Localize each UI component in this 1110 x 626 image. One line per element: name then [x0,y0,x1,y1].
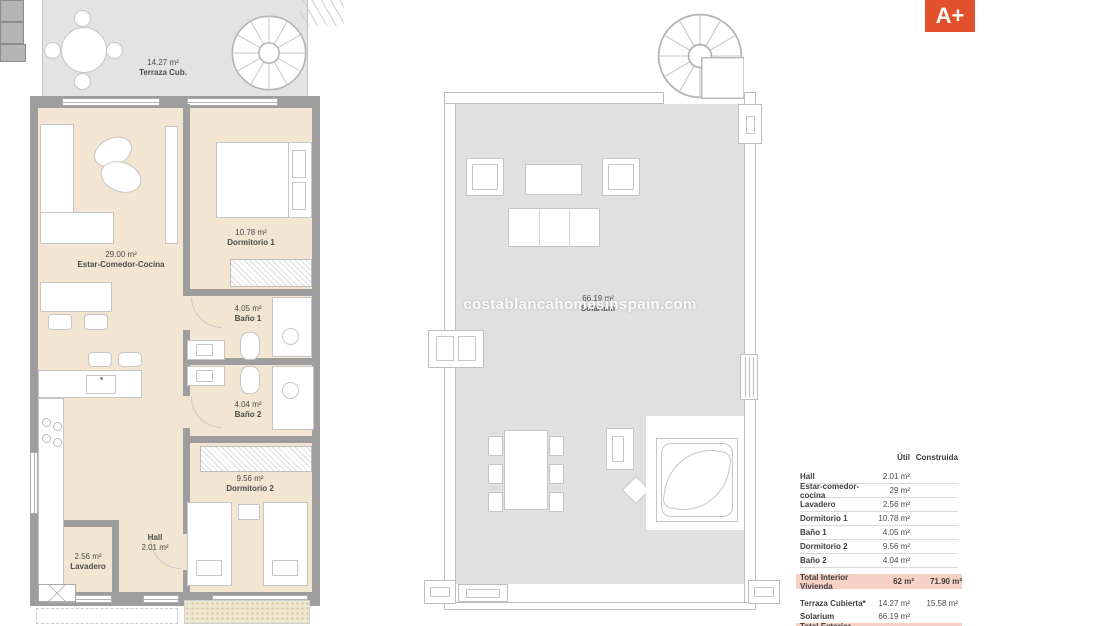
room-area: 4.04 m² [234,400,261,409]
chair [549,464,564,484]
spiral-staircase [230,12,308,94]
outdoor-sofa [508,208,600,247]
window [30,452,38,514]
area-table-header: Útil Construida [800,450,958,464]
row-label: Total Exterior Vivienda [800,622,874,626]
area-table-row: Estar-comedor-cocina 29 m² [800,484,958,498]
room-label-bano2: 4.04 m² Baño 2 [188,400,308,419]
row-label: Dormitorio 1 [800,514,870,523]
window [143,595,179,603]
dining-table [504,430,548,510]
room-label-bano1: 4.05 m² Baño 1 [188,304,308,323]
window [458,336,476,361]
window [187,98,278,106]
wall-segment [183,436,312,443]
garden-area [184,600,310,624]
room-label-estar: 29.00 m² Estar-Comedor-Cocina [56,250,186,269]
room-area: 2.01 m² [141,543,168,552]
row-label: Hall [800,472,870,481]
wall-segment [744,92,756,610]
pillow [292,150,306,178]
lower-terrace-outline [36,608,178,624]
room-area: 29.00 m² [105,250,137,259]
area-table-row: Baño 1 4.05 m² [800,526,958,540]
wall-post [0,44,26,62]
room-label-lavadero: 2.56 m² Lavadero [48,552,128,571]
area-table-row: Dormitorio 2 9.56 m² [800,540,958,554]
ladder-rail [745,357,746,397]
floorplan-sheet: 14.27 m² Terraza Cub. [0,0,1110,626]
row-label: Terraza Cubierta* [800,599,870,608]
wall-post [0,0,24,22]
tv-unit [165,126,178,244]
area-table-row: Dormitorio 1 10.78 m² [800,512,958,526]
lounge-armchair-seat [472,164,498,190]
coffee-table [525,164,582,195]
chair [488,436,503,456]
pillow [292,182,306,210]
washing-machine [38,584,76,602]
facade-box-inner [754,587,774,597]
burner [42,418,51,427]
wall-segment [312,96,320,606]
bar-stool [118,352,142,367]
sofa [40,124,74,214]
wardrobe [200,446,312,472]
row-util: 29 m² [870,486,910,495]
row-built: 15.58 m² [910,599,958,608]
terrace-chair [44,42,61,59]
toilet [240,366,260,394]
burner [42,434,51,443]
row-label: Estar-comedor-cocina [800,482,870,500]
terrace-chair [106,42,123,59]
row-label: Solarium [800,612,870,621]
wall-segment [444,602,756,610]
chair [488,464,503,484]
shower-drain [282,382,299,399]
washbasin [196,370,213,382]
row-util: 10.78 m² [870,514,910,523]
blanket [196,560,222,576]
room-name: Estar-Comedor-Cocina [77,260,164,269]
room-name: Baño 1 [235,314,262,323]
row-util: 62 m² [874,577,914,586]
room-area: 10.78 m² [235,228,267,237]
cooktop [40,416,64,452]
row-util: 4.04 m² [870,556,910,565]
room-name: Baño 2 [235,410,262,419]
room-name: Hall [148,533,163,542]
area-table-row: Baño 2 4.04 m² [800,554,958,568]
row-label: Baño 2 [800,556,870,565]
faucet [100,377,103,380]
column-construida: Construida [910,453,958,462]
room-area: 9.56 m² [236,474,263,483]
blanket [272,560,298,576]
chair [549,436,564,456]
column-util: Útil [870,453,910,462]
area-table-row: Lavadero 2.56 m² [800,498,958,512]
area-table-row: Terraza Cubierta* 14.27 m² 15.58 m² [800,597,958,610]
burner [53,438,62,447]
row-util: 14.27 m² [870,599,910,608]
row-util: 66.19 m² [870,612,910,621]
lounge-armchair-seat [608,164,634,190]
room-area: 4.05 m² [234,304,261,313]
chair [48,314,72,330]
row-label: Baño 1 [800,528,870,537]
sofa [40,212,114,244]
row-built: 71.90 m² [914,577,962,586]
total-interior-row: Total Interior Vivienda 62 m² 71.90 m² [796,574,962,589]
terrace-round-table [61,27,107,73]
row-util: 9.56 m² [870,542,910,551]
bar-stool [88,352,112,367]
wall-segment [444,92,664,104]
toilet [240,332,260,360]
facade-box-inner [430,587,450,597]
room-area: 2.56 m² [74,552,101,561]
row-label: Lavadero [800,500,870,509]
spiral-staircase [656,10,744,102]
sofa-cushion-line [569,210,570,245]
ladder-rail [753,357,754,397]
row-util: 2.01 m² [870,472,910,481]
chair [549,492,564,512]
room-name: Dormitorio 2 [226,484,274,493]
area-table: Útil Construida Hall 2.01 m² Estar-comed… [800,450,958,626]
shower-drain [282,328,299,345]
ladder-rail [749,357,750,397]
row-label: Dormitorio 2 [800,542,870,551]
facade-box-inner [466,589,500,598]
nightstand [238,504,260,520]
wall-post [0,22,24,44]
sofa-cushion-line [539,210,540,245]
row-util: 2.56 m² [870,500,910,509]
room-area: 14.27 m² [147,58,179,67]
dining-table [40,282,112,312]
terrace-chair [74,10,91,27]
washbasin [196,344,213,356]
pillar-core [746,116,755,134]
chair [488,492,503,512]
chair [84,314,108,330]
terrace-chair [74,73,91,90]
room-label-terraza: 14.27 m² Terraza Cub. [103,58,223,77]
energy-rating-badge: A+ [925,0,975,32]
room-name: Lavadero [70,562,106,571]
wardrobe [230,259,312,287]
wall-segment [190,289,312,296]
wall-segment [30,96,38,606]
row-label: Total Interior Vivienda [800,573,874,591]
shower-tray [612,436,624,462]
bed-line [288,143,289,217]
room-label-hall: Hall 2.01 m² [115,533,195,552]
watermark: costablancahomesinspain.com [444,296,716,313]
room-name: Dormitorio 1 [227,238,275,247]
window [436,336,454,361]
room-name: Terraza Cub. [139,68,187,77]
room-label-dormitorio2: 9.56 m² Dormitorio 2 [190,474,310,493]
room-label-dormitorio1: 10.78 m² Dormitorio 1 [191,228,311,247]
row-util: 4.05 m² [870,528,910,537]
burner [53,422,62,431]
window [62,98,160,106]
